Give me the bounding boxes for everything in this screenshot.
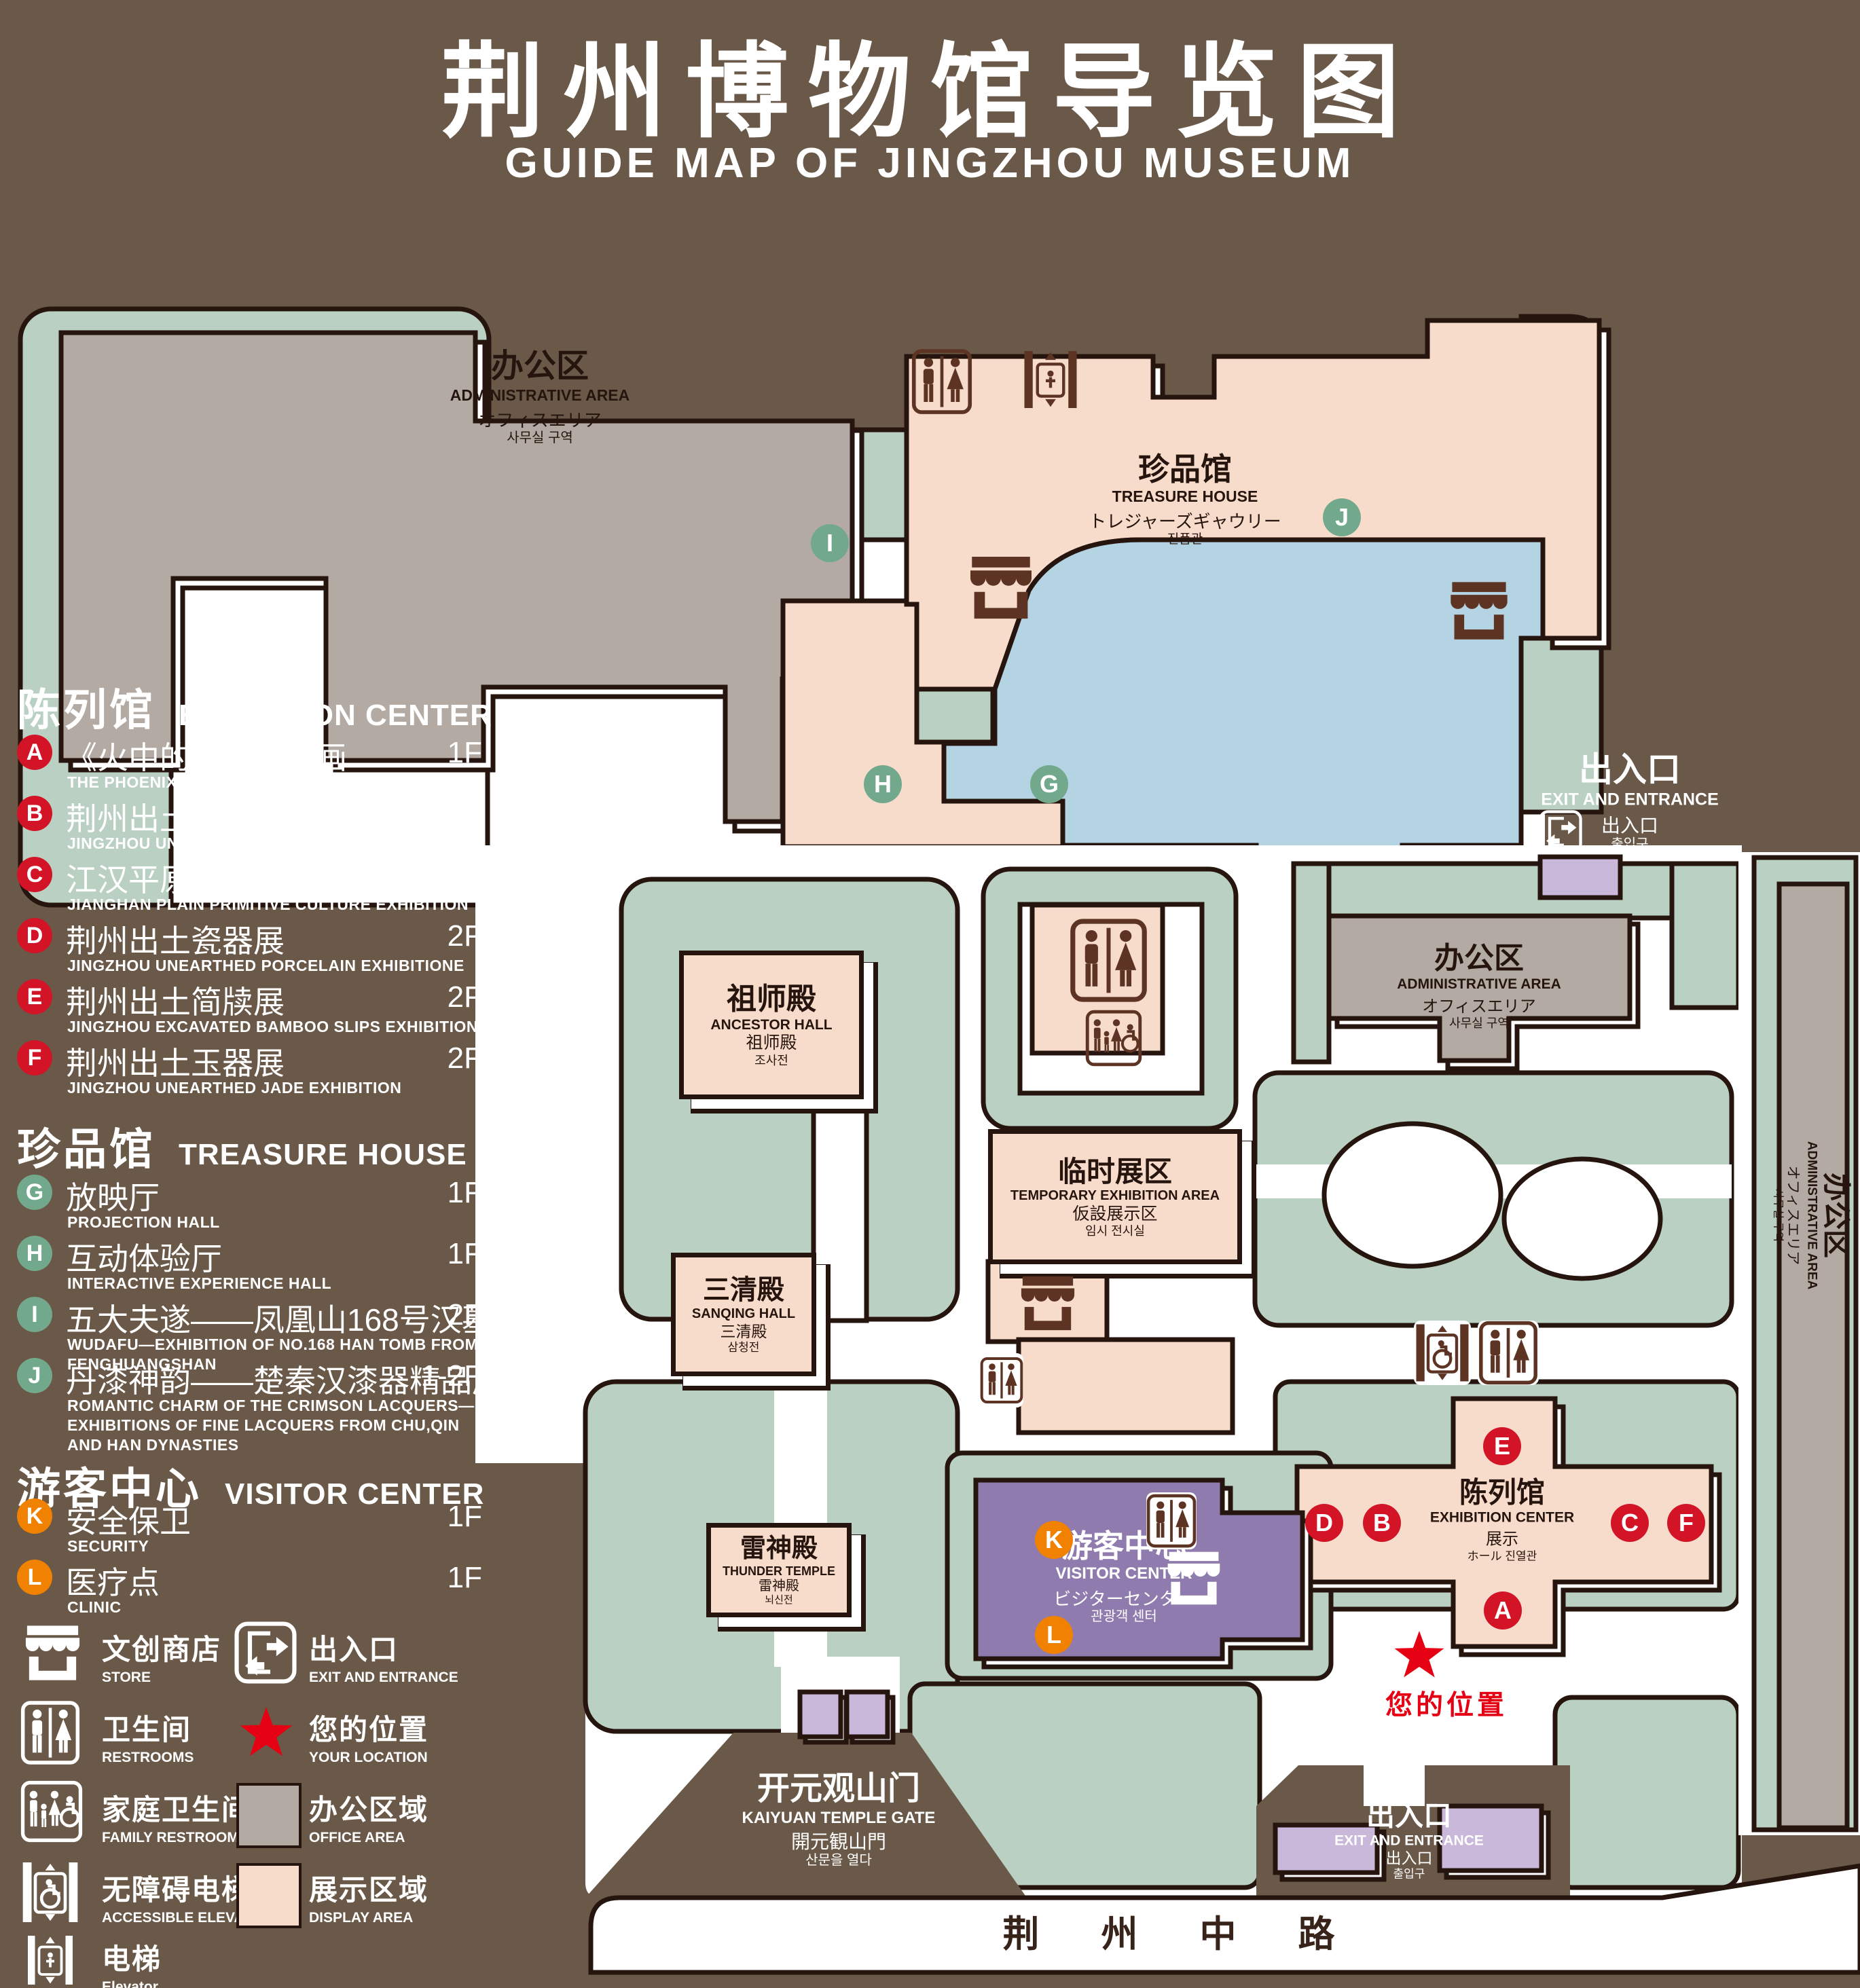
- restroom-icon: [1478, 1321, 1539, 1385]
- location-star-icon: [1393, 1630, 1445, 1680]
- restroom-icon: [1070, 918, 1148, 1003]
- label-admin-area-mid: 办公区 ADMINISTRATIVE AREA オフィスエリア 사무실 구역: [1397, 941, 1561, 1031]
- legend-symbol-family-restrooms: 家庭卫生间FAMILY RESTROOMS: [102, 1787, 251, 1846]
- legend-symbol-your-location: 您的位置YOUR LOCATION: [309, 1707, 428, 1766]
- display-area-swatch: [236, 1863, 302, 1928]
- map-marker-j: J: [1323, 498, 1361, 536]
- map-marker-e: E: [1483, 1427, 1521, 1465]
- map-marker-g: G: [1030, 765, 1068, 803]
- store-icon: [1014, 1274, 1082, 1332]
- legend-symbol-store: 文创商店STORE: [102, 1627, 221, 1686]
- building-ancestor-hall: 祖师殿 ANCESTOR HALL 祖师殿 조사전: [679, 951, 864, 1099]
- legend-symbol-display-area: 展示区域DISPLAY AREA: [309, 1867, 428, 1926]
- legend-marker-d: D: [17, 918, 52, 953]
- legend-section-treasure: 珍品馆TREASURE HOUSE: [17, 1115, 467, 1177]
- map-marker-l: L: [1035, 1616, 1073, 1654]
- exit-icon: [1539, 809, 1582, 854]
- store-icon: [1445, 578, 1513, 642]
- map-marker-c: C: [1611, 1504, 1649, 1542]
- map-marker-f: F: [1667, 1504, 1705, 1542]
- legend-symbol-restrooms: 卫生间RESTROOMS: [102, 1707, 194, 1766]
- legend-symbol-elevator: 电梯Elevator: [102, 1936, 162, 1988]
- legend-marker-h: H: [17, 1236, 52, 1271]
- restroom-icon: [911, 348, 972, 416]
- label-treasure-house: 珍品馆 TREASURE HOUSE トレジャーズギャウリー 진품관: [1089, 451, 1281, 547]
- location-star-icon: [239, 1706, 293, 1759]
- map-marker-i: I: [811, 524, 849, 562]
- label-admin-area-right: 办公区 ADMINISTRATIVE AREA オフィスエリア 사무실 구역: [1771, 1141, 1853, 1290]
- map-marker-b: B: [1363, 1504, 1401, 1542]
- accessible-elevator-icon: [1414, 1321, 1471, 1385]
- exit-icon: [234, 1621, 297, 1684]
- map-marker-a: A: [1484, 1591, 1522, 1630]
- legend-marker-b: B: [17, 796, 52, 831]
- legend-marker-l: L: [17, 1560, 52, 1595]
- legend-marker-e: E: [17, 979, 52, 1014]
- map-marker-h: H: [864, 765, 902, 803]
- label-road: 荆 州 中 路: [1002, 1913, 1360, 1957]
- legend-marker-i: I: [17, 1297, 52, 1332]
- store-icon: [964, 553, 1038, 621]
- elevator-icon: [1022, 345, 1079, 414]
- legend-marker-a: A: [17, 735, 52, 770]
- building-temporary-exhibition: 临时展区 TEMPORARY EXHIBITION AREA 仮設展示区 임시 …: [988, 1129, 1242, 1264]
- family-restroom-icon: [20, 1779, 83, 1844]
- label-admin-area-topleft: 办公区 ADMINISTRATIVE AREA オフィスエリア 사무실 구역: [450, 348, 630, 447]
- label-exhibition-center: 陈列馆 EXHIBITION CENTER 展示 ホール 진열관: [1430, 1476, 1574, 1564]
- office-area-swatch: [236, 1783, 302, 1848]
- guide-map-poster: 荆州博物馆导览图 GUIDE MAP OF JINGZHOU MUSEUM: [0, 0, 1860, 1988]
- restroom-icon: [20, 1700, 80, 1765]
- legend-marker-f: F: [17, 1040, 52, 1075]
- legend-symbol-exit: 出入口EXIT AND ENTRANCE: [309, 1627, 458, 1686]
- store-icon: [20, 1623, 85, 1682]
- restroom-icon: [980, 1353, 1023, 1407]
- building-sanqing-hall: 三清殿 SANQING HALL 三清殿 삼청전: [671, 1253, 816, 1376]
- legend-marker-g: G: [17, 1175, 52, 1210]
- legend-marker-c: C: [17, 857, 52, 892]
- restroom-icon: [1146, 1492, 1197, 1549]
- legend-marker-j: J: [17, 1358, 52, 1393]
- store-icon: [1163, 1548, 1225, 1608]
- building-thunder-temple: 雷神殿 THUNDER TEMPLE 雷神殿 뇌신전: [706, 1523, 852, 1617]
- accessible-elevator-icon: [20, 1859, 80, 1926]
- map-marker-d: D: [1305, 1504, 1343, 1542]
- family-restroom-icon: [1085, 1006, 1142, 1070]
- legend-marker-k: K: [17, 1498, 52, 1534]
- label-exit-bottom: 出入口 EXIT AND ENTRANCE 出入口 출입구: [1334, 1799, 1484, 1881]
- label-kaiyuan-gate: 开元观山门 KAIYUAN TEMPLE GATE 開元観山門 산문을 열다: [742, 1770, 936, 1869]
- map-marker-k: K: [1035, 1521, 1073, 1559]
- label-your-location: 您的位置: [1385, 1689, 1508, 1721]
- legend-symbol-office-area: 办公区域OFFICE AREA: [309, 1787, 428, 1846]
- legend-section-exhibition: 陈列馆EXHIBITION CENTER: [17, 676, 492, 738]
- elevator-icon: [20, 1934, 80, 1987]
